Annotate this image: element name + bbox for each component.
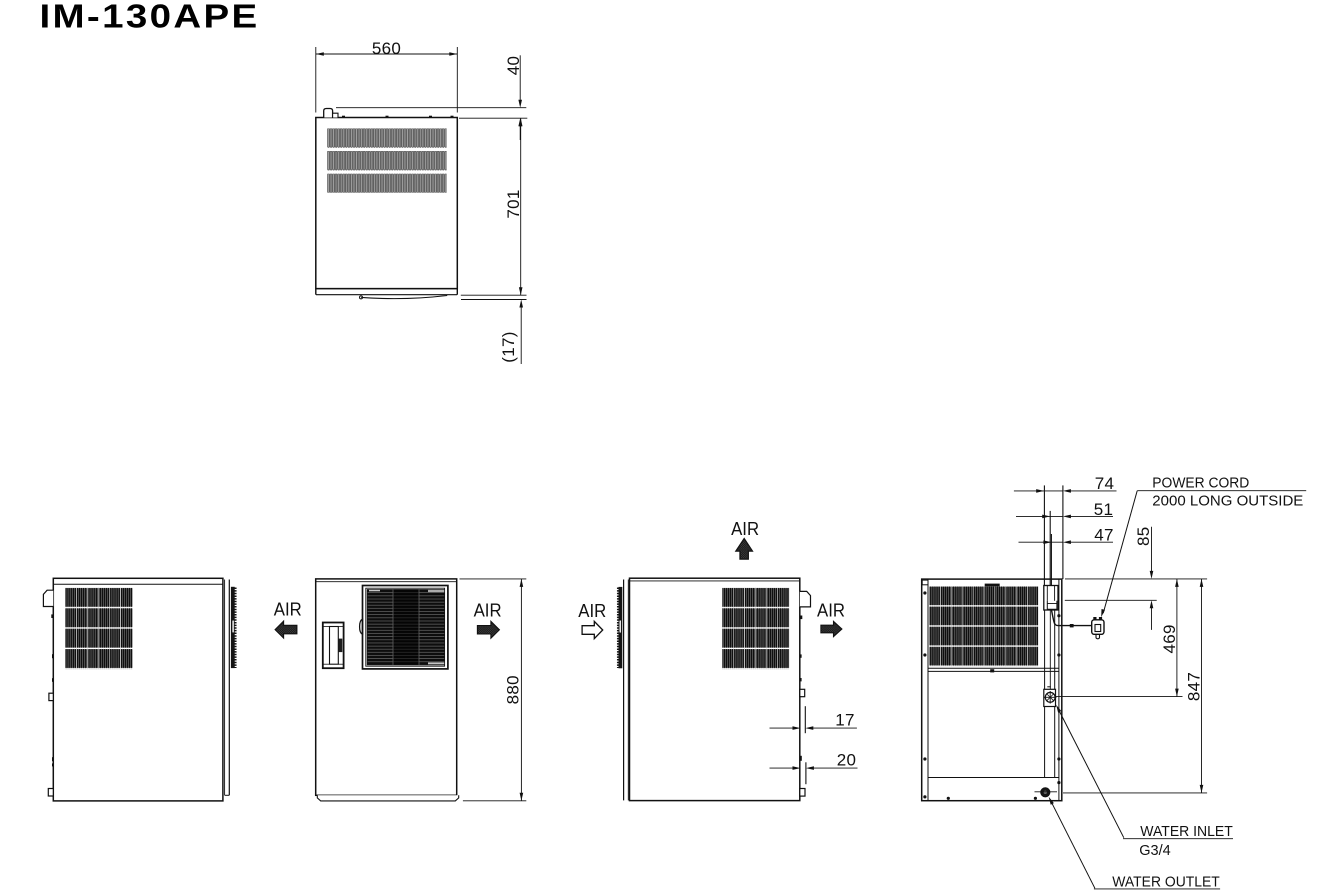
svg-text:51: 51 xyxy=(1094,500,1114,519)
svg-text:40: 40 xyxy=(504,56,523,76)
svg-text:WATER OUTLET: WATER OUTLET xyxy=(1112,874,1220,891)
svg-text:POWER CORD: POWER CORD xyxy=(1152,475,1249,492)
svg-text:560: 560 xyxy=(372,39,401,58)
svg-text:(17): (17) xyxy=(499,331,518,362)
svg-text:847: 847 xyxy=(1185,672,1204,701)
svg-text:880: 880 xyxy=(503,675,522,704)
svg-text:AIR: AIR xyxy=(274,599,302,619)
svg-text:47: 47 xyxy=(1094,526,1114,545)
svg-text:701: 701 xyxy=(504,189,523,218)
svg-text:AIR: AIR xyxy=(731,519,759,539)
svg-text:G3/4: G3/4 xyxy=(1139,842,1171,859)
svg-text:469: 469 xyxy=(1160,624,1179,653)
svg-text:17: 17 xyxy=(835,711,855,730)
svg-text:2000 LONG OUTSIDE: 2000 LONG OUTSIDE xyxy=(1152,492,1303,509)
svg-text:AIR: AIR xyxy=(817,601,845,621)
svg-text:AIR: AIR xyxy=(578,601,606,621)
svg-text:WATER INLET: WATER INLET xyxy=(1140,823,1233,840)
svg-text:IM-130APE: IM-130APE xyxy=(40,0,260,35)
svg-text:20: 20 xyxy=(837,750,857,769)
svg-text:85: 85 xyxy=(1134,526,1153,546)
svg-text:74: 74 xyxy=(1095,474,1115,493)
svg-text:AIR: AIR xyxy=(474,601,502,621)
